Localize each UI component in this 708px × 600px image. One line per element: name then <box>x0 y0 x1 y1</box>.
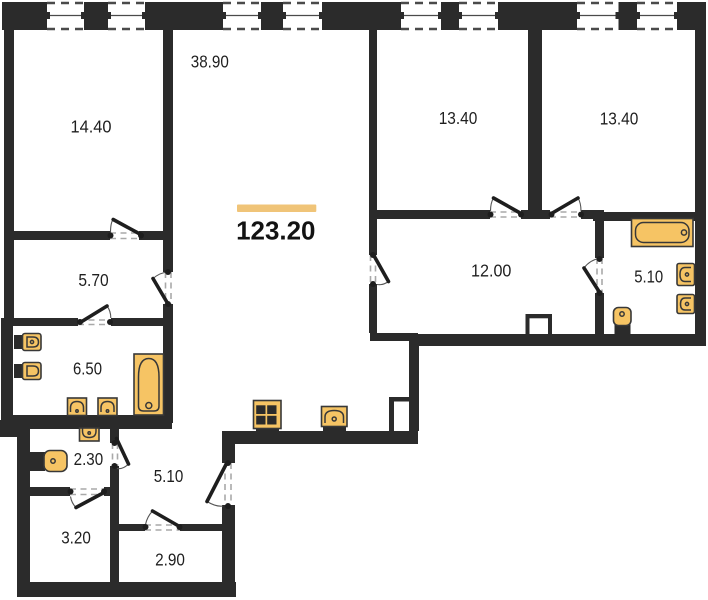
svg-text:2.30: 2.30 <box>74 449 104 469</box>
svg-text:12.00: 12.00 <box>471 260 511 280</box>
svg-text:6.50: 6.50 <box>73 359 102 379</box>
svg-text:123.20: 123.20 <box>236 218 315 246</box>
svg-text:5.10: 5.10 <box>634 267 663 287</box>
svg-text:5.70: 5.70 <box>78 270 108 290</box>
svg-text:14.40: 14.40 <box>71 117 112 137</box>
svg-text:3.20: 3.20 <box>61 528 91 548</box>
svg-text:2.90: 2.90 <box>155 550 185 570</box>
svg-text:5.10: 5.10 <box>154 466 184 486</box>
svg-text:13.40: 13.40 <box>439 108 478 128</box>
svg-text:38.90: 38.90 <box>191 52 229 72</box>
svg-text:13.40: 13.40 <box>600 109 639 129</box>
